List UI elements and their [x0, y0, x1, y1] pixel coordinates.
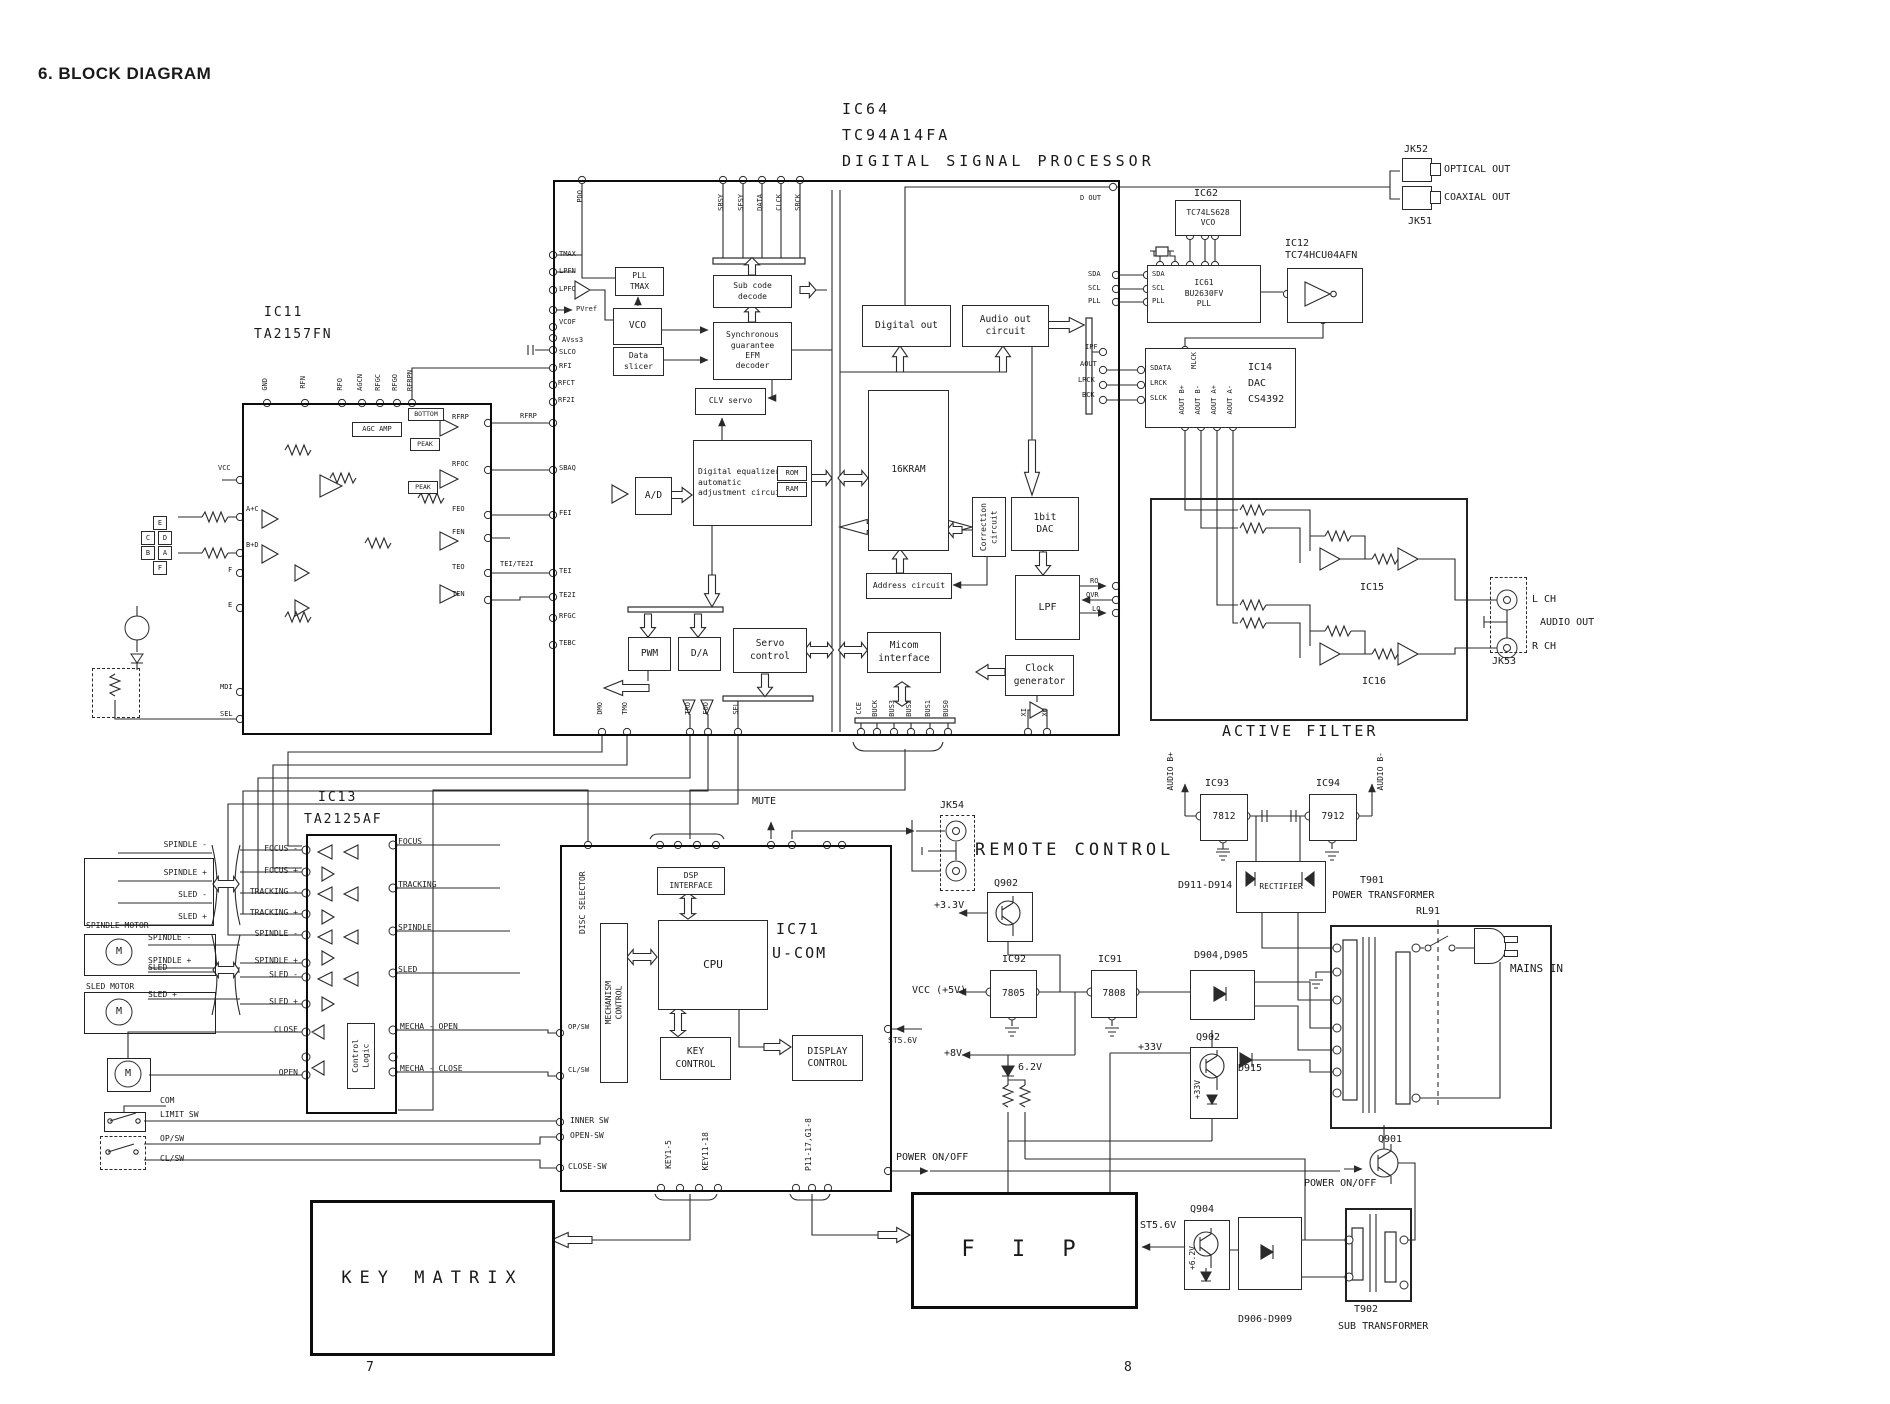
- block-diagram-page: PLL TMAX Sub code decode VCO Data slicer…: [0, 0, 1890, 1404]
- jk53-audio-jack: [1490, 577, 1527, 653]
- rl91-label: RL91: [1416, 906, 1440, 918]
- pin-te2i: TE2I: [559, 591, 576, 599]
- peak-block-2: PEAK: [408, 481, 438, 494]
- pwm-label: PWM: [641, 648, 658, 660]
- pin-fei: FEI: [559, 509, 572, 517]
- ic14-label: IC14 DAC CS4392: [1248, 360, 1284, 408]
- pin-aout-ap: AOUT A+: [1210, 385, 1218, 415]
- d915-label: D915: [1238, 1063, 1262, 1075]
- jk51-coaxial-jack: [1402, 186, 1432, 210]
- optical-out-label: OPTICAL OUT: [1444, 164, 1510, 176]
- ic62-block: TC74LS628 VCO: [1175, 200, 1241, 236]
- ic13-tracking-out: TRACKING: [398, 880, 437, 890]
- pin-cce: CCE: [855, 702, 863, 715]
- digout-label: Digital out: [875, 320, 938, 332]
- q904-label: Q904: [1190, 1204, 1214, 1216]
- sled-motor-icon: M: [109, 1006, 129, 1017]
- micom-interface-block: Micom interface: [867, 632, 941, 673]
- p33-label: +3.3V: [934, 900, 964, 912]
- ic13-mecha-close: MECHA - CLOSE: [400, 1064, 463, 1074]
- ram-block: RAM: [777, 482, 807, 497]
- disc-selector-label: DISC SELECTOR: [578, 848, 588, 934]
- ctrl-label: Control Logic: [351, 1039, 372, 1073]
- ic13-focus-minus: FOCUS -: [200, 844, 298, 854]
- ic94-label: IC94: [1316, 778, 1340, 790]
- page-number-left: 7: [366, 1360, 374, 1376]
- d911-label: D911-D914: [1178, 880, 1232, 892]
- active-filter-label: ACTIVE FILTER: [1222, 722, 1378, 740]
- pin-rfrpn: RFRPN: [406, 370, 414, 391]
- opsw-pin-label: OP/SW: [568, 1023, 589, 1031]
- pin-vcc: VCC: [218, 464, 231, 472]
- photodiode-e: E: [153, 516, 167, 530]
- key-ctrl-label: KEY CONTROL: [675, 1046, 715, 1071]
- ad-label: A/D: [645, 490, 662, 502]
- op-sw-label: OP/SW: [160, 1134, 184, 1144]
- ic13-close: CLOSE: [200, 1025, 298, 1035]
- lch-label: L CH: [1532, 594, 1556, 606]
- peak-label-2: PEAK: [415, 483, 431, 491]
- dsp-if-label: DSP INTERFACE: [669, 871, 712, 892]
- key15-label: KEY1-5: [664, 1140, 674, 1169]
- st56-q904-label: ST5.6V: [1140, 1220, 1176, 1232]
- p8-label: +8V: [944, 1048, 962, 1060]
- pin-bus1: BUS1: [924, 700, 932, 717]
- efm-decoder-block: Synchronous guarantee EFM decoder: [713, 322, 792, 380]
- d906-d909-block: [1238, 1217, 1302, 1290]
- dac1-label: 1bit DAC: [1034, 512, 1057, 537]
- pin-scl-ic61: SCL: [1152, 284, 1165, 292]
- mech-label: MECHANISM CONTROL: [604, 981, 625, 1024]
- ic13-tracking-minus: TRACKING -: [200, 887, 298, 897]
- pin-sel-ic11: SEL: [220, 710, 233, 718]
- pin-rfoc: RFOC: [452, 460, 469, 468]
- correction-circuit-block: Correction circuit: [972, 497, 1006, 557]
- remote-control-label: REMOTE CONTROL: [975, 840, 1174, 860]
- pin-sbaq: SBAQ: [559, 464, 576, 472]
- ic71-ref: IC71: [776, 920, 820, 938]
- ic91-block: 7808: [1091, 970, 1137, 1018]
- q902-bottom-label: Q902: [1196, 1032, 1220, 1044]
- pin-fen: FEN: [452, 528, 465, 536]
- sled-motor-minus: SLED -: [148, 963, 177, 973]
- pin-agcn: AGCN: [356, 374, 364, 391]
- pin-buck: BUCK: [871, 700, 879, 717]
- ic92-block: 7805: [990, 970, 1037, 1018]
- pin-ovr: OVR: [1086, 591, 1099, 599]
- z62-label: 6.2V: [1018, 1062, 1042, 1074]
- ic11-part: TA2157FN: [254, 327, 333, 343]
- ic13-spindle-minus: SPINDLE -: [200, 929, 298, 939]
- pin-tro: TRO: [684, 702, 692, 715]
- t902-label: T902: [1354, 1304, 1378, 1316]
- t901-outline: [1330, 925, 1552, 1129]
- mains-prong-1: [1504, 936, 1518, 943]
- pin-aout-am: AOUT A-: [1226, 385, 1234, 415]
- jk54-remote-jack: [940, 815, 975, 891]
- pwr-tr-label: POWER TRANSFORMER: [1332, 890, 1434, 902]
- jk53-label: JK53: [1492, 656, 1516, 668]
- conn-spindle-minus: SPINDLE -: [115, 840, 207, 850]
- ad-block: A/D: [635, 477, 672, 515]
- ic11-ref: IC11: [264, 305, 303, 321]
- ic13-mecha-open: MECHA - OPEN: [400, 1022, 458, 1032]
- pll-tmax-block: PLL TMAX: [615, 267, 664, 296]
- page-number-right: 8: [1124, 1360, 1132, 1376]
- p33v-label: +33V: [1138, 1042, 1162, 1054]
- ic64-ref: IC64: [842, 100, 890, 118]
- ic61-label: IC61 BU2630FV PLL: [1185, 278, 1224, 309]
- ic13-focus-plus: FOCUS +: [200, 866, 298, 876]
- peak-label-1: PEAK: [417, 440, 433, 448]
- rectifier-block: RECTIFIER: [1236, 861, 1326, 913]
- peak-block-1: PEAK: [410, 438, 440, 451]
- pwm-block: PWM: [628, 637, 671, 671]
- pin-rfgc-ic11: RFGC: [374, 374, 382, 391]
- mains-in-label: MAINS IN: [1510, 962, 1563, 975]
- clock-label: Clock generator: [1014, 663, 1065, 688]
- pin-bd: B+D: [246, 541, 259, 549]
- pin-sda-ic61: SDA: [1152, 270, 1165, 278]
- mains-plug: [1474, 928, 1506, 964]
- pin-sfsy: SFSY: [737, 194, 745, 211]
- r7812-label: 7812: [1213, 811, 1236, 823]
- jk52-optical-jack: [1402, 158, 1432, 182]
- pin-xo: XO: [1041, 708, 1049, 716]
- pin-aout-bm: AOUT B-: [1194, 385, 1202, 415]
- sled-motor-plus: SLED +: [148, 990, 177, 1000]
- vco-block: VCO: [613, 308, 662, 345]
- p1117-label: P11-17,G1-8: [804, 1118, 814, 1171]
- clv-servo-block: CLV servo: [695, 388, 766, 415]
- pin-pdo: PDO: [576, 190, 584, 203]
- pin-data: DATA: [756, 194, 764, 211]
- open-close-switch-box: [100, 1136, 146, 1170]
- clsw-pin-label: CL/SW: [568, 1066, 589, 1074]
- pin-pvref: PVref: [576, 305, 597, 313]
- clock-generator-block: Clock generator: [1005, 655, 1074, 696]
- t901-label: T901: [1360, 875, 1384, 887]
- pin-teo: TEO: [452, 563, 465, 571]
- pin-ac: A+C: [246, 505, 259, 513]
- pin-ten: TEN: [452, 590, 465, 598]
- sub-code-decode-block: Sub code decode: [713, 275, 792, 308]
- agc-amp-block: AGC AMP: [352, 422, 402, 437]
- pin-tei-te2i: TEI/TE2I: [500, 560, 534, 568]
- pin-slck: SLCK: [1150, 394, 1167, 402]
- ic62-part-label: TC74LS628 VCO: [1186, 208, 1229, 229]
- mute-label: MUTE: [752, 796, 776, 808]
- spindle-motor-minus: SPINDLE -: [148, 933, 191, 943]
- subcode-label: Sub code decode: [733, 281, 772, 302]
- micom-label: Micom interface: [878, 640, 929, 665]
- pin-ipf: IPF: [1085, 343, 1098, 351]
- d904-label: D904,D905: [1194, 950, 1248, 962]
- inner-sw-label: INNER SW: [570, 1116, 609, 1126]
- ic12-block: [1287, 268, 1363, 323]
- pin-slco: SLCO: [559, 348, 576, 356]
- lpf-label: LPF: [1038, 601, 1056, 614]
- key-matrix-block: KEY MATRIX: [310, 1200, 555, 1356]
- pin-tebc: TEBC: [559, 639, 576, 647]
- fip-block: F I P: [911, 1192, 1138, 1309]
- pin-clck: CLCK: [775, 194, 783, 211]
- pin-mdi: MDI: [220, 683, 233, 691]
- loading-motor-icon: M: [118, 1068, 138, 1079]
- jk54-label: JK54: [940, 800, 964, 812]
- ram-label: RAM: [786, 485, 799, 494]
- key-control-block: KEY CONTROL: [660, 1037, 731, 1080]
- pin-rfn: RFN: [299, 376, 307, 389]
- pin-rfi: RFI: [559, 362, 572, 370]
- da-label: D/A: [691, 648, 708, 660]
- photodiode-b: B: [141, 546, 155, 560]
- audio-bplus-label: AUDIO B+: [1166, 752, 1176, 791]
- audioout-label: Audio out circuit: [980, 314, 1031, 339]
- pin-rfrp-ic11: RFRP: [452, 413, 469, 421]
- q902-top-block: [987, 892, 1033, 942]
- pin-ro: RO: [1090, 577, 1098, 585]
- conn-spindle-plus: SPINDLE +: [115, 868, 207, 878]
- sub-tr-label: SUB TRANSFORMER: [1338, 1321, 1428, 1333]
- pin-rfo: RFO: [336, 378, 344, 391]
- pin-tmo: TMO: [621, 702, 629, 715]
- bottom-label: BOTTOM: [414, 410, 437, 418]
- pin-aout-bp: AOUT B+: [1178, 385, 1186, 415]
- photodiode-c: C: [141, 531, 155, 545]
- pin-sda-dsp: SDA: [1088, 270, 1101, 278]
- pin-e: E: [228, 601, 232, 609]
- rom-block: ROM: [777, 466, 807, 481]
- lpf-block: LPF: [1015, 575, 1080, 640]
- ic13-spindle-out: SPINDLE: [398, 923, 432, 933]
- photodiode-d: D: [158, 531, 172, 545]
- data-slicer-block: Data slicer: [613, 347, 664, 376]
- pin-pll-ic61: PLL: [1152, 297, 1165, 305]
- pin-bus3: BUS3: [888, 700, 896, 717]
- pin-tmax: TMAX: [559, 250, 576, 258]
- pin-feo: FEO: [452, 505, 465, 513]
- ic92-label: IC92: [1002, 954, 1026, 966]
- pin-sbsy: SBSY: [717, 194, 725, 211]
- pin-rfct: RFCT: [558, 379, 575, 387]
- q901-power-label: POWER ON/OFF: [1304, 1178, 1376, 1190]
- deq-label: Digital equalizer automatic adjustment c…: [698, 467, 785, 498]
- conn-sled-minus: SLED -: [115, 890, 207, 900]
- pin-f: F: [228, 566, 232, 574]
- cl-sw-label: CL/SW: [160, 1154, 184, 1164]
- ic64-part: TC94A14FA: [842, 126, 950, 144]
- r7808-label: 7808: [1103, 988, 1126, 1000]
- agc-label: AGC AMP: [362, 425, 392, 434]
- ic13-open: OPEN: [200, 1068, 298, 1078]
- r7912-label: 7912: [1322, 811, 1345, 823]
- spindle-motor-label: SPINDLE MOTOR: [86, 921, 149, 931]
- mains-prong-2: [1504, 950, 1518, 957]
- pin-bus0: BUS0: [942, 700, 950, 717]
- control-logic-block: Control Logic: [347, 1023, 375, 1089]
- pin-gnd: GND: [261, 378, 269, 391]
- pin-lpfo: LPFO: [559, 285, 576, 293]
- jk51-label: JK51: [1408, 216, 1432, 228]
- efm-label: Synchronous guarantee EFM decoder: [726, 330, 779, 372]
- ic93-block: 7812: [1200, 794, 1248, 841]
- pin-sel: SEL: [732, 702, 740, 715]
- st56-label: ST5.6V: [888, 1036, 917, 1046]
- jk51-prong: [1430, 191, 1441, 204]
- page-title: 6. BLOCK DIAGRAM: [38, 64, 211, 84]
- fip-label: F I P: [961, 1236, 1087, 1265]
- pin-lo: LO: [1092, 605, 1100, 613]
- ic62-ref: IC62: [1194, 188, 1218, 200]
- rect-label: RECTIFIER: [1259, 882, 1302, 892]
- ic13-focus-out: FOCUS: [398, 837, 422, 847]
- ic13-part: TA2125AF: [304, 812, 383, 828]
- key-matrix-label: KEY MATRIX: [341, 1267, 523, 1289]
- photodiode-f: F: [153, 561, 167, 575]
- data-slicer-label: Data slicer: [624, 351, 653, 372]
- ic93-label: IC93: [1205, 778, 1229, 790]
- pin-xi: XI: [1020, 708, 1028, 716]
- pin-avss3: AVss3: [562, 336, 583, 344]
- pin-vcof: VCOF: [559, 318, 576, 326]
- corr-label: Correction circuit: [979, 503, 1000, 551]
- pin-scl-dsp: SCL: [1088, 284, 1101, 292]
- cpu-block: CPU: [658, 920, 768, 1010]
- spindle-motor-icon: M: [109, 946, 129, 957]
- ic13-sled-minus: SLED -: [200, 970, 298, 980]
- vcc5-label: VCC (+5V): [912, 985, 966, 997]
- r7805-label: 7805: [1002, 988, 1025, 1000]
- t902-outline: [1345, 1208, 1412, 1302]
- ic13-tracking-plus: TRACKING +: [200, 908, 298, 918]
- pin-sdata: SDATA: [1150, 364, 1171, 372]
- da-block: D/A: [678, 637, 721, 671]
- pin-tei: TEI: [559, 567, 572, 575]
- q902-top-label: Q902: [994, 878, 1018, 890]
- vco-label: VCO: [629, 320, 646, 332]
- ic13-ref: IC13: [318, 790, 357, 806]
- bottom-block: BOTTOM: [408, 408, 444, 421]
- pin-sbck: SBCK: [794, 194, 802, 211]
- power-onoff-label: POWER ON/OFF: [896, 1152, 968, 1164]
- coaxial-out-label: COAXIAL OUT: [1444, 192, 1510, 204]
- pin-dout: D OUT: [1080, 194, 1101, 202]
- addr-label: Address circuit: [873, 581, 945, 591]
- clv-label: CLV servo: [709, 396, 752, 406]
- ic15-label: IC15: [1360, 582, 1384, 594]
- ic71-name: U-COM: [772, 944, 827, 962]
- cpu-label: CPU: [703, 958, 723, 972]
- photodiode-a: A: [158, 546, 172, 560]
- pin-lpfn: LPFN: [559, 267, 576, 275]
- pin-bck: BCK: [1082, 391, 1095, 399]
- pin-pll-dsp: PLL: [1088, 297, 1101, 305]
- audio-out-block: Audio out circuit: [962, 305, 1049, 347]
- open-sw-label: OPEN-SW: [570, 1131, 604, 1141]
- pin-rfgo: RFGO: [391, 374, 399, 391]
- pll-tmax-label: PLL TMAX: [630, 271, 649, 292]
- address-circuit-block: Address circuit: [866, 573, 952, 599]
- audio-bminus-label: AUDIO B-: [1376, 752, 1386, 791]
- jk52-prong: [1430, 163, 1441, 176]
- jk52-label: JK52: [1404, 144, 1428, 156]
- key1118-label: KEY11-18: [701, 1132, 711, 1171]
- pin-foo: FOO: [702, 702, 710, 715]
- ic13-sled-plus: SLED +: [200, 997, 298, 1007]
- servo-control-block: Servo control: [733, 628, 807, 673]
- dsp-interface-block: DSP INTERFACE: [657, 867, 725, 895]
- ic12-ref: IC12 TC74HCU04AFN: [1285, 238, 1357, 262]
- sled-motor-label: SLED MOTOR: [86, 982, 134, 992]
- pin-bus2: BUS2: [905, 700, 913, 717]
- pin-rf2i: RF2I: [558, 396, 575, 404]
- pin-aout: AOUT: [1080, 360, 1097, 368]
- q901-label: Q901: [1378, 1134, 1402, 1146]
- d906-label: D906-D909: [1238, 1314, 1292, 1326]
- ic13-spindle-plus: SPINDLE +: [200, 956, 298, 966]
- close-sw-label: CLOSE-SW: [568, 1162, 607, 1172]
- servo-label: Servo control: [750, 638, 790, 663]
- pin-rfgc: RFGC: [559, 612, 576, 620]
- laser-apc-box: [92, 668, 140, 718]
- p62-label: +6.2V: [1188, 1246, 1198, 1270]
- com-label: COM: [160, 1096, 174, 1106]
- pin-rfrp: RFRP: [520, 412, 537, 420]
- rom-label: ROM: [786, 469, 799, 478]
- digital-out-block: Digital out: [862, 305, 951, 347]
- pin-dmo: DMO: [596, 702, 604, 715]
- 1bit-dac-block: 1bit DAC: [1011, 497, 1079, 551]
- rch-label: R CH: [1532, 641, 1556, 653]
- ic16-label: IC16: [1362, 676, 1386, 688]
- mechanism-control-block: MECHANISM CONTROL: [600, 923, 628, 1083]
- d904-d905-block: [1190, 970, 1255, 1020]
- limit-sw-label: LIMIT SW: [160, 1110, 199, 1120]
- p33v-zener-label: +33V: [1193, 1080, 1203, 1099]
- ic64-name: DIGITAL SIGNAL PROCESSOR: [842, 152, 1155, 170]
- limit-switch-box: [104, 1112, 146, 1132]
- pin-lrck-ic14: LRCK: [1150, 379, 1167, 387]
- ic13-sled-out: SLED: [398, 965, 417, 975]
- kram-block: 16KRAM: [868, 390, 949, 551]
- ic94-block: 7912: [1309, 794, 1357, 841]
- audio-out-label: AUDIO OUT: [1540, 617, 1594, 629]
- active-filter-outline: [1150, 498, 1468, 721]
- kram-label: 16KRAM: [891, 464, 925, 476]
- disp-ctrl-label: DISPLAY CONTROL: [807, 1046, 847, 1071]
- pin-mlck: MLCK: [1190, 352, 1198, 369]
- ic91-label: IC91: [1098, 954, 1122, 966]
- pin-lrck: LRCK: [1078, 376, 1095, 384]
- display-control-block: DISPLAY CONTROL: [792, 1035, 863, 1081]
